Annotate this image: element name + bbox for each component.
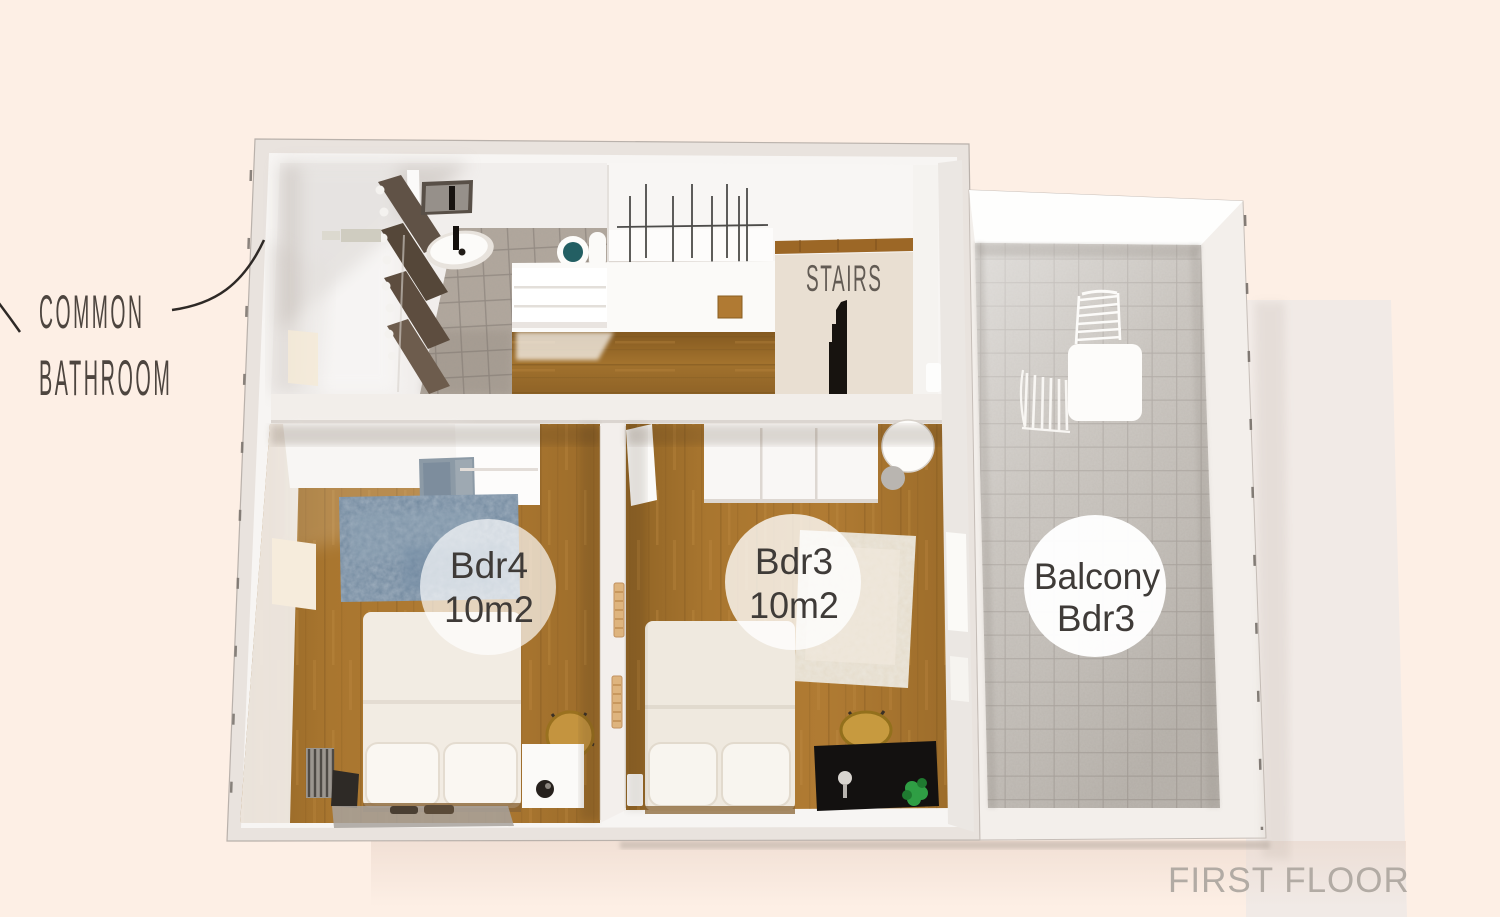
svg-text:Bdr3: Bdr3 <box>755 541 833 582</box>
svg-text:Bdr4: Bdr4 <box>450 545 528 586</box>
svg-text:Balcony: Balcony <box>1034 555 1161 597</box>
svg-text:Bdr3: Bdr3 <box>1057 598 1135 639</box>
svg-text:BATHROOM: BATHROOM <box>39 352 172 407</box>
svg-text:10m2: 10m2 <box>749 585 839 627</box>
svg-text:COMMON: COMMON <box>39 285 145 339</box>
svg-text:FIRST FLOOR: FIRST FLOOR <box>1168 861 1410 900</box>
svg-text:10m2: 10m2 <box>444 589 534 631</box>
svg-text:STAIRS: STAIRS <box>806 258 883 300</box>
